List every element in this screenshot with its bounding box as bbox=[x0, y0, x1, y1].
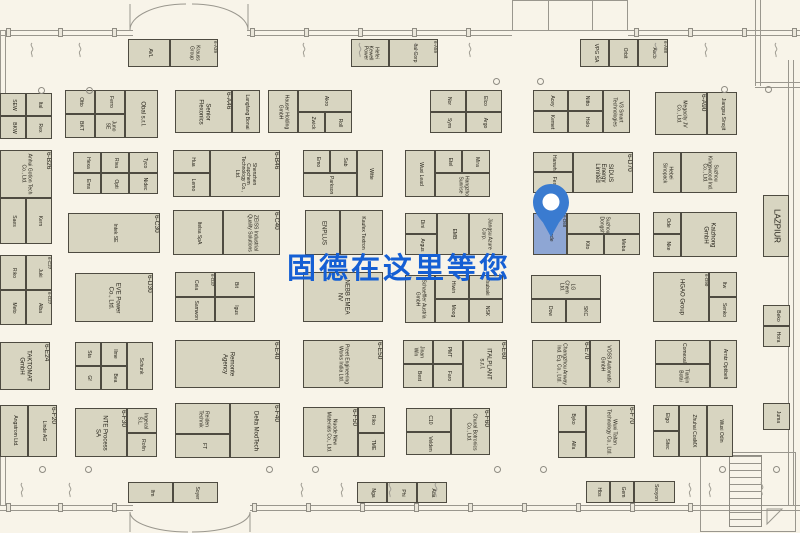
booth-label: Bea bbox=[111, 369, 117, 387]
booth-label: Nitto bbox=[583, 93, 589, 108]
booth-cell[interactable]: SEW bbox=[0, 93, 26, 116]
booth-label: Nidec bbox=[141, 176, 147, 191]
booth-label: SIDUS Energy Limited bbox=[593, 155, 613, 190]
booth-code: 6-E24 bbox=[43, 344, 50, 361]
booth-code: 6-B46 bbox=[273, 152, 280, 169]
booth-cell[interactable]: Dini bbox=[405, 213, 437, 234]
booth-label: Samwon bbox=[192, 300, 198, 319]
booth-cell[interactable]: Kern bbox=[26, 198, 52, 244]
booth-label: Sitec bbox=[663, 434, 669, 454]
booth-label: Dow bbox=[546, 302, 552, 320]
booth-cell[interactable]: Hora bbox=[763, 326, 790, 347]
pillar-marker bbox=[312, 466, 319, 473]
wall-squiggle-mark bbox=[386, 482, 394, 498]
booth-label: ZEISS Industrial Quality Solutions bbox=[246, 213, 257, 252]
booth-cell[interactable]: Soyer bbox=[173, 482, 218, 503]
booth-cell[interactable]: Alba6-D27 bbox=[26, 290, 52, 325]
booth-cell[interactable]: Juki6-C27 bbox=[26, 255, 52, 290]
booth-label: Sym bbox=[445, 115, 451, 130]
booth-cell[interactable]: Mira bbox=[462, 150, 490, 173]
wall-top-right bbox=[628, 30, 800, 36]
booth-cell[interactable]: Hbs bbox=[586, 481, 610, 503]
booth-cell[interactable]: Beko bbox=[763, 305, 790, 326]
booth-cell[interactable]: Nuode New Materials Co., Ltd.6-F50 bbox=[303, 407, 358, 457]
booth-cell[interactable]: Tianjin Botai bbox=[655, 364, 710, 388]
booth-cell[interactable]: Bit bbox=[215, 272, 255, 297]
booth-label: Preet Engineering Works India Ltd. bbox=[338, 343, 349, 385]
booth-cell[interactable]: Elco bbox=[466, 90, 502, 112]
wall-column-tick bbox=[58, 28, 63, 37]
booth-label: Ingecal S.L. bbox=[137, 411, 148, 430]
booth-cell[interactable]: Roll bbox=[325, 112, 352, 133]
wall-column-tick bbox=[522, 503, 527, 512]
booth-cell[interactable]: TME bbox=[358, 433, 385, 457]
booth-cell[interactable]: SKC bbox=[566, 299, 601, 323]
pillar-marker bbox=[494, 466, 501, 473]
booth-code: 6-C27 bbox=[47, 257, 52, 269]
wall-squiggle-mark bbox=[338, 482, 346, 498]
booth-cell[interactable]: Akro bbox=[298, 90, 352, 112]
booth-cell[interactable]: Megacity JV Co., Ltd.6-A90 bbox=[655, 92, 707, 135]
booth-label: Ferro bbox=[107, 93, 113, 111]
booth-label: Ifm bbox=[148, 485, 154, 500]
booth-label: Hua bbox=[189, 153, 195, 170]
booth-label: Alfa bbox=[569, 435, 575, 455]
booth-cell[interactable]: Faro bbox=[433, 364, 463, 388]
wall-squiggle-mark bbox=[772, 42, 780, 58]
wall-squiggle-mark bbox=[706, 482, 714, 498]
booth-cell[interactable]: Meba bbox=[604, 234, 640, 255]
exhibition-floor-plan: 固德在这里等您 AVLKrauss Group6-A39Hefei Kewell… bbox=[0, 0, 800, 533]
booth-label: Krauss Group bbox=[189, 42, 200, 64]
booth-cell[interactable]: Reiden Technik bbox=[175, 403, 230, 434]
booth-label: Byko bbox=[569, 408, 575, 429]
booth-code: 6-D27 bbox=[47, 292, 52, 304]
booth-cell[interactable]: Ilme bbox=[101, 342, 127, 366]
wall-column-tick bbox=[304, 28, 309, 37]
booth-label: PMT bbox=[445, 343, 451, 361]
wall-squiggle-mark bbox=[412, 42, 420, 58]
wall-squiggle-mark bbox=[702, 42, 710, 58]
booth-cell[interactable]: VOSS Automatic GmbH bbox=[590, 340, 620, 388]
wall-column-tick bbox=[576, 503, 581, 512]
booth-cell[interactable]: Intek SE6-C30 bbox=[68, 213, 160, 253]
booth-cell[interactable]: Shenzhen Capchem Technology Co., Ltd.6-B… bbox=[210, 150, 280, 197]
booth-cell[interactable]: EVE Power Co., Ltd.6-D30 bbox=[75, 273, 153, 322]
booth-cell[interactable]: Senko bbox=[709, 297, 737, 322]
wall-column-tick bbox=[250, 28, 255, 37]
booth-cell[interactable]: Alfa bbox=[558, 432, 586, 458]
booth-cell[interactable]: NTE Process SA6-F30 bbox=[75, 408, 127, 457]
booth-label: Emo bbox=[314, 153, 320, 170]
booth-cell[interactable]: Itw bbox=[709, 272, 737, 297]
booth-label: Soyer bbox=[193, 485, 199, 500]
booth-label: Hauser Holding GmbH bbox=[278, 93, 289, 130]
booth-label: Elgo bbox=[663, 408, 669, 428]
wall-right bbox=[788, 60, 794, 506]
booth-cell[interactable]: AVL bbox=[128, 39, 170, 67]
booth-cell[interactable]: Gf bbox=[75, 366, 101, 390]
booth-cell[interactable]: Velden bbox=[406, 432, 451, 455]
wall-squiggle-mark bbox=[28, 42, 36, 58]
pillar-marker bbox=[85, 466, 92, 473]
booth-cell[interactable]: Tyco bbox=[129, 152, 158, 173]
booth-cell[interactable]: Obal s.r.l. bbox=[125, 90, 158, 138]
location-pin[interactable] bbox=[531, 183, 571, 239]
wall-left-top-stub bbox=[0, 30, 6, 93]
booth-label: Hexa bbox=[84, 155, 90, 170]
booth-label: TME bbox=[369, 436, 375, 454]
booth-cell[interactable]: Langfang Bonai bbox=[232, 90, 260, 133]
booth-cell[interactable]: LG Chem Ltd. bbox=[531, 275, 601, 299]
booth-location-banner: 固德在这里等您 bbox=[287, 245, 511, 287]
booth-cell[interactable]: Ingecal S.L. bbox=[127, 408, 157, 433]
entrance-door-bottom[interactable] bbox=[128, 511, 252, 533]
pillar-marker bbox=[540, 466, 547, 473]
wall-column-tick bbox=[630, 503, 635, 512]
wall-squiggle-mark bbox=[76, 42, 84, 58]
booth-label: BKT bbox=[77, 117, 83, 135]
booth-cell[interactable]: Chural Botronics Co., Ltd.6-F60 bbox=[451, 408, 490, 455]
booth-cell[interactable]: Hua bbox=[173, 150, 210, 173]
wall-top-middle bbox=[247, 30, 512, 36]
booth-code: 6-E50 bbox=[376, 342, 383, 359]
booth-label: Suzhou Kingswood Ind. Co., Ltd. bbox=[701, 155, 718, 190]
wall-squiggle-mark bbox=[652, 42, 660, 58]
booth-label: Meto bbox=[10, 293, 16, 322]
wall-left-bottom-stub bbox=[0, 457, 6, 505]
booth-cell[interactable]: Meto bbox=[0, 290, 26, 325]
booth-cell[interactable]: Nitto bbox=[568, 90, 603, 111]
wall-squiggle-mark bbox=[356, 42, 364, 58]
booth-label: Parkson bbox=[327, 176, 333, 194]
wall-column-tick bbox=[6, 28, 11, 37]
booth-code: 6-C30 bbox=[153, 215, 160, 233]
booth-cell[interactable]: C10 bbox=[406, 408, 451, 432]
booth-cell[interactable]: Hexa bbox=[73, 152, 101, 173]
booth-label: V3 Smart Technologies bbox=[611, 93, 622, 130]
booth-cell[interactable]: Delta ModTech6-F40 bbox=[230, 403, 280, 458]
wall-squiggle-mark bbox=[466, 42, 474, 58]
booth-label: Itelsa SpA bbox=[195, 213, 201, 252]
booth-cell[interactable]: ITALPLANT s.r.l.6-E60 bbox=[463, 340, 507, 388]
booth-cell[interactable]: Igus bbox=[215, 297, 255, 322]
booth-cell[interactable]: Itelsa SpA bbox=[173, 210, 223, 255]
booth-code: 6-F20 bbox=[50, 407, 57, 424]
vestibule bbox=[512, 0, 628, 31]
booth-label: Meba bbox=[619, 237, 625, 252]
booth-label: Ode bbox=[664, 215, 670, 231]
wall-column-tick bbox=[306, 503, 311, 512]
booth-cell[interactable]: VPG SA bbox=[580, 39, 609, 67]
booth-code: 6-F60 bbox=[483, 410, 490, 427]
booth-code: 6-F50 bbox=[351, 409, 358, 426]
wall-column-tick bbox=[58, 503, 63, 512]
booth-code: 6-E40 bbox=[273, 342, 280, 359]
booth-label: Hebei Sinopack bbox=[662, 155, 673, 190]
pillar-marker bbox=[493, 78, 500, 85]
booth-label: Hanwha bbox=[550, 155, 556, 169]
booth-code: 6-F30 bbox=[120, 410, 127, 427]
booth-label: Ital bbox=[36, 96, 42, 113]
booth-label: Sta bbox=[85, 345, 91, 363]
booth-label: Linde AG bbox=[40, 408, 46, 454]
wall-top-right-stub-h bbox=[755, 82, 800, 88]
booth-cell[interactable]: PMT bbox=[433, 340, 463, 364]
booth-label: Remonte Agency bbox=[221, 343, 234, 385]
booth-label: Kemet bbox=[548, 114, 554, 130]
booth-label: Tyco bbox=[141, 155, 147, 170]
booth-cell[interactable]: Riko bbox=[358, 407, 385, 433]
booth-cell[interactable]: Nor bbox=[430, 90, 466, 112]
booth-label: Hora bbox=[774, 329, 780, 344]
booth-cell[interactable]: BKW bbox=[0, 116, 26, 139]
booth-label: Kito bbox=[583, 237, 589, 252]
booth-cell[interactable]: Juma bbox=[763, 403, 790, 430]
booth-label: Saes bbox=[10, 201, 16, 241]
booth-label: Seoyon bbox=[652, 484, 658, 500]
booth-cell[interactable]: Best bbox=[403, 364, 433, 388]
booth-label: Lemo bbox=[189, 176, 195, 194]
booth-label: Argo bbox=[481, 115, 487, 130]
booth-label: Orbit bbox=[621, 42, 627, 64]
wall-squiggle-mark bbox=[686, 482, 694, 498]
pillar-marker bbox=[773, 466, 780, 473]
entrance-door-top[interactable] bbox=[128, 2, 250, 32]
wall-column-tick bbox=[412, 28, 417, 37]
booth-label: Sab bbox=[341, 153, 347, 170]
booth-cell[interactable]: TAKTOMAT GmbH6-E24 bbox=[0, 342, 50, 390]
booth-label: VOSS Automatic GmbH bbox=[600, 343, 611, 385]
booth-cell[interactable]: Rofin bbox=[127, 433, 157, 457]
booth-cell[interactable]: Kemet bbox=[533, 111, 568, 133]
booth-cell[interactable]: Nga bbox=[357, 482, 387, 503]
booth-cell[interactable]: Orbit bbox=[609, 39, 638, 67]
wall-squiggle-mark bbox=[432, 482, 440, 498]
booth-cell[interactable]: FT bbox=[175, 434, 230, 458]
booth-cell[interactable]: Changzhou Anway Ind. Eq. Co., Ltd.6-E70 bbox=[532, 340, 590, 388]
booth-cell[interactable]: Preet Engineering Works India Ltd.6-E50 bbox=[303, 340, 383, 388]
booth-cell[interactable]: Ferro bbox=[95, 90, 125, 114]
booth-label: Jinan Win bbox=[413, 343, 424, 361]
pin-inner-circle bbox=[543, 194, 560, 211]
wall-column-tick bbox=[634, 28, 639, 37]
booth-cell[interactable]: Nidec bbox=[129, 173, 158, 194]
booth-label: Ceia bbox=[192, 275, 198, 294]
booth-cell[interactable]: Wuxi Lead bbox=[405, 150, 435, 197]
booth-label: Mira bbox=[473, 153, 479, 170]
booth-cell[interactable]: Ital bbox=[26, 93, 52, 116]
booth-label: Roll bbox=[336, 115, 342, 130]
booth-label: Gem bbox=[619, 484, 625, 500]
booth-cell[interactable]: Angstrom Ltd. bbox=[0, 405, 28, 457]
booth-cell[interactable]: Sta bbox=[75, 342, 101, 366]
booth-label: Langfang Bonai bbox=[243, 93, 249, 130]
booth-cell[interactable]: Juno SE bbox=[95, 114, 125, 138]
booth-cell[interactable]: Hebei Sinopack bbox=[653, 152, 681, 193]
booth-cell[interactable]: Kito bbox=[567, 234, 604, 255]
booth-label: Suzhou Dongshan bbox=[598, 216, 609, 231]
wall-column-tick bbox=[466, 28, 471, 37]
booth-cell[interactable]: Parkson bbox=[303, 173, 357, 197]
booth-cell[interactable]: Sitec bbox=[653, 431, 679, 457]
booth-cell[interactable]: Elgo bbox=[653, 405, 679, 431]
booth-cell[interactable]: Ems bbox=[73, 173, 101, 194]
booth-label: Moog bbox=[449, 302, 455, 320]
booth-cell[interactable]: Saes bbox=[0, 198, 26, 244]
booth-label: EVE Power Co., Ltd. bbox=[107, 276, 120, 319]
booth-cell[interactable]: Acey bbox=[533, 90, 568, 111]
booth-cell[interactable]: Suzhou Kingswood Ind. Co., Ltd. bbox=[681, 152, 737, 193]
booth-cell[interactable]: Arntz Optibelt bbox=[710, 340, 737, 388]
booth-cell[interactable]: SIDUS Energy Limited6-D70 bbox=[573, 152, 633, 193]
booth-cell[interactable]: Emo bbox=[303, 150, 330, 173]
stair-arrow bbox=[766, 508, 784, 526]
booth-label: Wuxi Lead bbox=[417, 153, 423, 194]
booth-label: Nga bbox=[369, 485, 375, 500]
booth-cell[interactable]: Kaizhong GmbH bbox=[681, 212, 737, 257]
booth-cell[interactable]: Linde AG6-F20 bbox=[28, 405, 57, 457]
booth-cell[interactable]: Zhuhai CosMX bbox=[679, 405, 707, 457]
booth-cell[interactable]: BKT bbox=[65, 114, 95, 138]
booth-label: Hangzhou Sunrise bbox=[457, 176, 468, 194]
booth-code: 6-C40 bbox=[273, 212, 280, 230]
booth-label: Rofin bbox=[139, 436, 145, 454]
pillar-marker bbox=[537, 78, 544, 85]
booth-label: Schunk bbox=[137, 345, 143, 387]
booth-label: TAKTOMAT GmbH bbox=[18, 345, 31, 387]
booth-code: 6-A88 bbox=[663, 41, 668, 53]
booth-label: Phi bbox=[399, 485, 405, 500]
booth-code: 6-D90 bbox=[704, 274, 709, 286]
booth-cell[interactable]: ZEISS Industrial Quality Solutions6-C40 bbox=[223, 210, 280, 255]
booth-cell[interactable]: Seoyon bbox=[634, 481, 675, 503]
booth-cell[interactable]: Etel bbox=[435, 150, 462, 173]
booth-code: 6-F40 bbox=[273, 405, 280, 422]
booth-label: Opti bbox=[112, 176, 118, 191]
booth-cell[interactable]: Sab bbox=[330, 150, 357, 173]
pillar-marker bbox=[39, 466, 46, 473]
booth-label: Riko bbox=[369, 410, 375, 430]
booth-cell[interactable]: Byko bbox=[558, 405, 586, 432]
booth-cell[interactable]: Ifm bbox=[128, 482, 173, 503]
booth-cell[interactable]: Ceia6-D37 bbox=[175, 272, 215, 297]
booth-code: 6-D37 bbox=[210, 274, 215, 286]
booth-label: Dini bbox=[418, 216, 424, 231]
booth-label: Itw bbox=[720, 275, 726, 294]
vestibule-divider bbox=[592, 0, 593, 31]
booth-label: Witte bbox=[367, 153, 373, 194]
booth-label: Ilme bbox=[111, 345, 117, 363]
booth-cell[interactable]: Krauss Group6-A39 bbox=[170, 39, 218, 67]
booth-label: BKW bbox=[10, 119, 16, 136]
booth-cell[interactable]: Dow bbox=[531, 299, 566, 323]
booth-label: Arntz Optibelt bbox=[721, 343, 727, 385]
booth-cell[interactable]: Rex bbox=[26, 116, 52, 139]
booth-cell[interactable]: Jiangsu Sinojit bbox=[707, 92, 737, 135]
booth-code: 6-A39 bbox=[213, 41, 218, 53]
booth-cell[interactable]: Holo bbox=[568, 111, 603, 133]
booth-label: Juno SE bbox=[105, 117, 116, 135]
booth-cell[interactable]: Comexale bbox=[655, 340, 710, 364]
booth-cell[interactable]: LAZPIUR bbox=[763, 195, 789, 257]
wall-column-tick bbox=[358, 28, 363, 37]
booth-label: Anhui Gotion Tech Co., Ltd. bbox=[21, 153, 32, 195]
booth-code: 6-F70 bbox=[628, 407, 635, 424]
booth-cell[interactable]: HGAO Group6-D90 bbox=[653, 272, 709, 322]
pillar-marker bbox=[719, 466, 726, 473]
pillar-marker bbox=[765, 86, 772, 93]
wall-squiggle-mark bbox=[66, 482, 74, 498]
booth-cell[interactable]: Riva bbox=[101, 152, 129, 173]
booth-code: 6-A90 bbox=[700, 94, 707, 111]
booth-label: SEW bbox=[10, 96, 16, 113]
booth-cell[interactable]: Sym bbox=[430, 112, 466, 133]
booth-cell[interactable]: Ode bbox=[653, 212, 681, 234]
booth-cell[interactable]: Hanwha bbox=[533, 152, 573, 172]
pillar-marker bbox=[266, 466, 273, 473]
wall-column-tick bbox=[792, 28, 797, 37]
booth-label: Igus bbox=[232, 300, 238, 319]
booth-code: 6-B26 bbox=[45, 152, 52, 169]
booth-label: Velden bbox=[426, 435, 432, 452]
booth-label: Holo bbox=[583, 114, 589, 130]
booth-cell[interactable]: Wuxi Taitan Technology Co., Ltd.6-F70 bbox=[586, 405, 635, 458]
booth-label: Jiangsu Sinojit bbox=[719, 95, 725, 132]
booth-label: Rex bbox=[36, 119, 42, 136]
booth-label: Hefei Kewell Power bbox=[362, 42, 379, 64]
booth-cell[interactable]: Samwon bbox=[175, 297, 215, 322]
booth-label: Chural Botronics Co., Ltd. bbox=[465, 411, 476, 452]
wall-top-right-stub bbox=[755, 0, 761, 86]
booth-cell[interactable]: Riko bbox=[0, 255, 26, 290]
booth-cell[interactable]: Gem bbox=[610, 481, 634, 503]
booth-cell[interactable]: Senior Flexonics6-A46 bbox=[175, 90, 232, 133]
booth-cell[interactable]: Wuxi Odin bbox=[707, 405, 733, 457]
booth-cell[interactable]: Nke bbox=[653, 234, 681, 257]
booth-cell[interactable]: Schunk bbox=[127, 342, 153, 390]
booth-label: Megacity JV Co., Ltd. bbox=[676, 95, 687, 132]
booth-label: Nor bbox=[445, 93, 451, 109]
booth-label: Juki bbox=[36, 258, 42, 287]
booth-cell[interactable]: Hauser Holding GmbH bbox=[268, 90, 298, 133]
booth-cell[interactable]: Hangzhou Sunrise bbox=[435, 173, 490, 197]
booth-cell[interactable]: Opti bbox=[101, 173, 129, 194]
booth-label: Ems bbox=[84, 176, 90, 191]
booth-cell[interactable]: Remonte Agency6-E40 bbox=[175, 340, 280, 388]
booth-label: ITALPLANT s.r.l. bbox=[478, 343, 491, 385]
booth-cell[interactable]: Argo bbox=[466, 112, 502, 133]
booth-label: Senior Flexonics bbox=[197, 93, 210, 130]
booth-cell[interactable]: V3 Smart Technologies bbox=[603, 90, 630, 133]
booth-cell[interactable]: Lemo bbox=[173, 173, 210, 197]
booth-cell[interactable]: Bea bbox=[101, 366, 127, 390]
wall-column-tick bbox=[112, 503, 117, 512]
booth-label: FT bbox=[200, 437, 206, 455]
booth-cell[interactable]: Suzhou Dongshan bbox=[567, 213, 640, 234]
pillar-marker bbox=[721, 86, 728, 93]
booth-cell[interactable]: Anhui Gotion Tech Co., Ltd.6-B26 bbox=[0, 150, 52, 198]
booth-cell[interactable]: Jinan Win bbox=[403, 340, 433, 364]
wall-column-tick bbox=[414, 503, 419, 512]
booth-cell[interactable]: Zwick bbox=[298, 112, 325, 133]
booth-label: Wuxi Odin bbox=[717, 408, 723, 454]
booth-cell[interactable]: NSK bbox=[469, 299, 503, 323]
wall-column-tick bbox=[742, 28, 747, 37]
booth-cell[interactable]: Moog bbox=[435, 299, 469, 323]
booth-label: Beko bbox=[774, 308, 780, 323]
booth-cell[interactable]: Witte bbox=[357, 150, 383, 197]
